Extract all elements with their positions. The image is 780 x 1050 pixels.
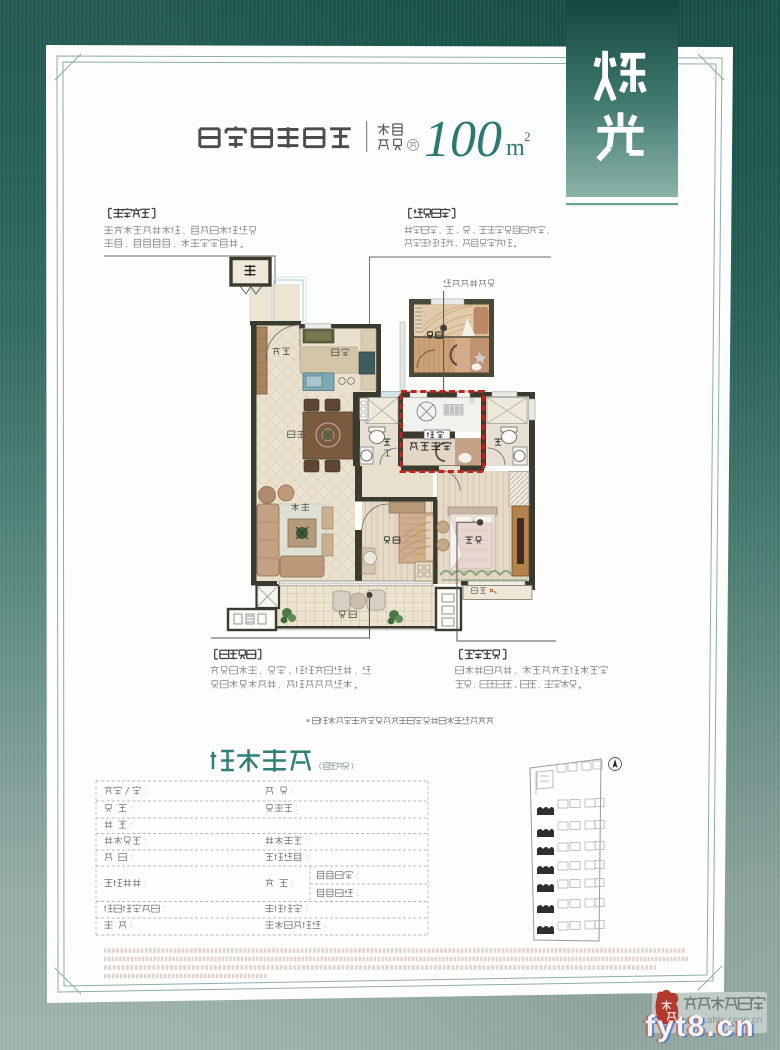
svg-text:2: 2 [524, 129, 531, 144]
svg-text:m: m [506, 135, 525, 161]
svg-text:100: 100 [424, 111, 502, 168]
svg-text:fyt8.cn: fyt8.cn [645, 1010, 756, 1043]
